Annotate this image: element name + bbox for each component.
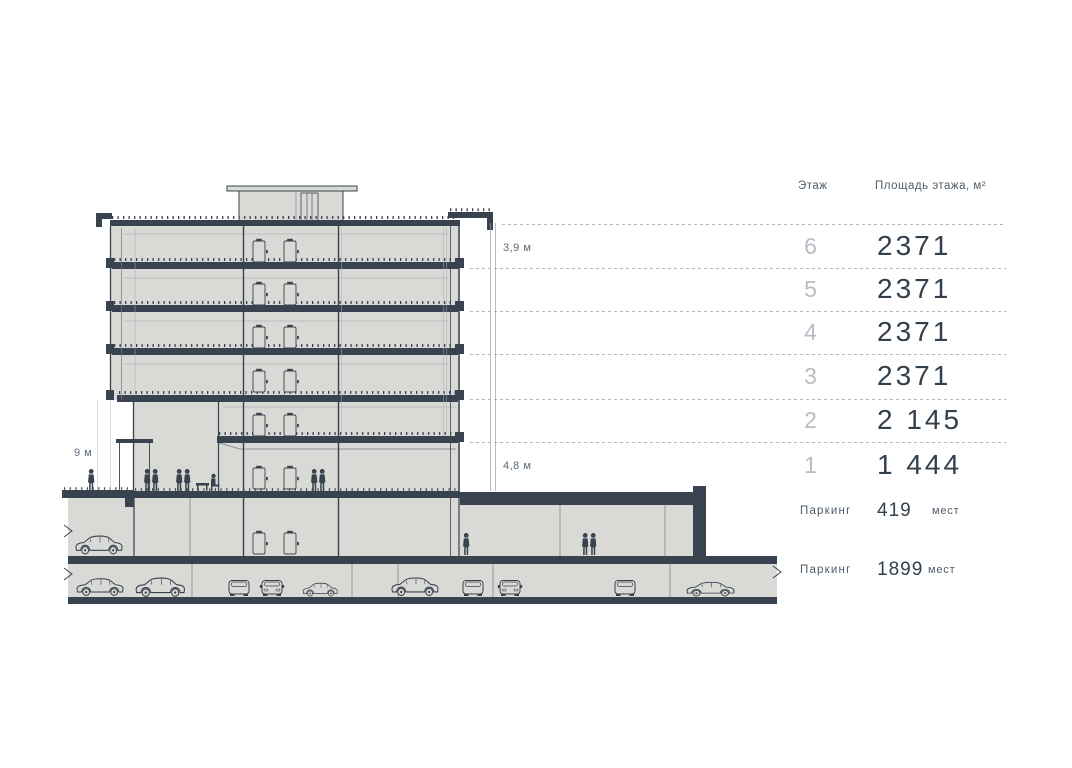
floor-area-value: 2371 (877, 356, 951, 396)
parking-unit: мест (932, 500, 959, 522)
parking-row-1: Паркинг 419 мест (780, 500, 1040, 522)
parking-label: Паркинг (800, 559, 851, 581)
floor-row-2: 2 2 145 (780, 400, 1040, 440)
floor-number: 6 (798, 226, 824, 266)
floor-number: 1 (798, 445, 824, 485)
dimension-label-floor-height: 3,9 м (503, 242, 531, 254)
dimension-dashed-line (470, 354, 1006, 355)
floor-row-5: 5 2371 (780, 269, 1040, 309)
parking-label: Паркинг (800, 500, 851, 522)
floor-number: 4 (798, 312, 824, 352)
dimension-label-ground-height: 4,8 м (503, 460, 531, 472)
floor-number: 3 (798, 356, 824, 396)
floor-area-value: 1 444 (877, 445, 962, 485)
floor-row-4: 4 2371 (780, 312, 1040, 352)
dimension-label-lobby-height: 9 м (74, 447, 92, 459)
floor-row-3: 3 2371 (780, 356, 1040, 396)
parking-unit: мест (928, 559, 955, 581)
parking-value: 419 (877, 500, 912, 522)
table-header-floor: Этаж (798, 180, 828, 192)
dimension-dashed-line (502, 224, 1006, 225)
floor-area-value: 2 145 (877, 400, 962, 440)
floor-area-value: 2371 (877, 226, 951, 266)
page: 3,9 м 4,8 м 9 м Этаж Площадь этажа, м² 6… (0, 0, 1072, 768)
floor-number: 2 (798, 400, 824, 440)
floor-area-value: 2371 (877, 312, 951, 352)
floor-row-1: 1 1 444 (780, 445, 1040, 485)
floor-number: 5 (798, 269, 824, 309)
parking-value: 1899 (877, 559, 923, 581)
floor-row-6: 6 2371 (780, 226, 1040, 266)
parking-row-2: Паркинг 1899 мест (780, 559, 1040, 581)
dimension-dashed-line (470, 442, 1006, 443)
floor-area-value: 2371 (877, 269, 951, 309)
table-header-area: Площадь этажа, м² (875, 180, 986, 192)
